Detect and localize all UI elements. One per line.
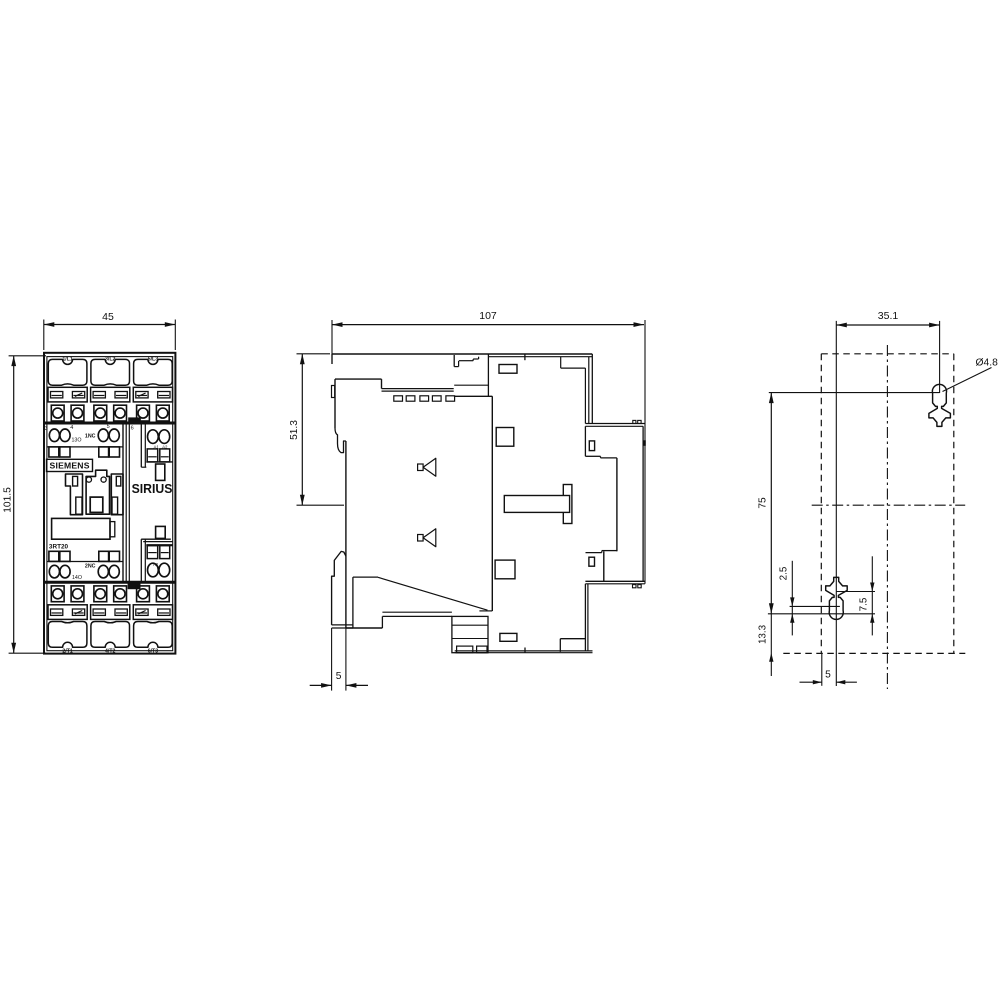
svg-text:2NC: 2NC (85, 564, 96, 570)
svg-text:4/T2: 4/T2 (105, 649, 115, 655)
svg-text:5: 5 (336, 671, 342, 682)
svg-text:107: 107 (479, 310, 497, 322)
svg-text:45: 45 (102, 311, 114, 323)
svg-text:75: 75 (758, 497, 769, 509)
svg-text:13O: 13O (71, 438, 81, 444)
svg-text:6/T3: 6/T3 (148, 649, 158, 655)
svg-text:SIEMENS: SIEMENS (50, 460, 90, 470)
svg-text:35.1: 35.1 (878, 310, 899, 322)
svg-text:4: 4 (70, 425, 73, 431)
svg-text:5/L3: 5/L3 (148, 356, 158, 362)
svg-text:14O: 14O (72, 575, 82, 581)
svg-text:2.5: 2.5 (778, 566, 789, 580)
svg-text:13.3: 13.3 (758, 624, 769, 644)
svg-text:3: 3 (45, 426, 48, 432)
svg-text:6: 6 (131, 426, 134, 432)
svg-text:7.5: 7.5 (858, 597, 869, 611)
svg-text:2/T1: 2/T1 (62, 649, 72, 655)
svg-text:SIRIUS: SIRIUS (132, 482, 173, 496)
svg-text:101.5: 101.5 (3, 487, 14, 513)
svg-text:3RT20: 3RT20 (49, 543, 69, 550)
svg-text:3/L2: 3/L2 (105, 356, 115, 362)
svg-text:5: 5 (825, 670, 831, 681)
svg-text:51.3: 51.3 (289, 420, 300, 440)
svg-text:5: 5 (107, 424, 110, 430)
svg-text:1NC: 1NC (85, 433, 96, 439)
svg-text:A2: A2 (153, 562, 159, 567)
svg-text:1/L1: 1/L1 (62, 356, 72, 362)
svg-text:Ø4.8: Ø4.8 (976, 357, 999, 368)
